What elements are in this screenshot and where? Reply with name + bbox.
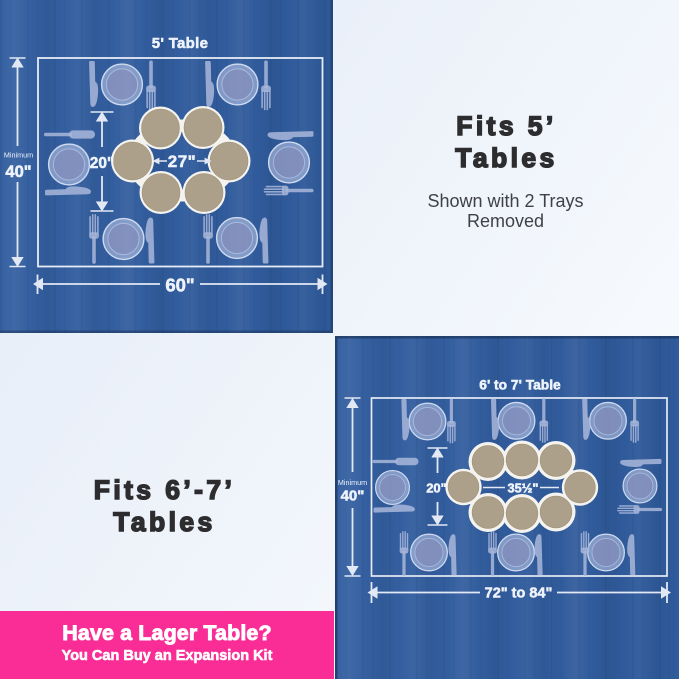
svg-text:Minimum: Minimum xyxy=(4,151,33,160)
svg-text:72" to 84": 72" to 84" xyxy=(485,586,553,602)
svg-text:27": 27" xyxy=(168,152,196,171)
svg-text:40": 40" xyxy=(341,488,365,505)
svg-text:60": 60" xyxy=(165,275,194,296)
svg-text:40": 40" xyxy=(5,163,31,181)
svg-text:35½": 35½" xyxy=(508,481,539,496)
svg-text:5' Table: 5' Table xyxy=(152,35,209,52)
svg-text:20": 20" xyxy=(426,481,447,496)
svg-text:Minimum: Minimum xyxy=(338,478,367,487)
svg-text:20": 20" xyxy=(90,155,115,172)
svg-text:6' to 7' Table: 6' to 7' Table xyxy=(479,378,561,393)
